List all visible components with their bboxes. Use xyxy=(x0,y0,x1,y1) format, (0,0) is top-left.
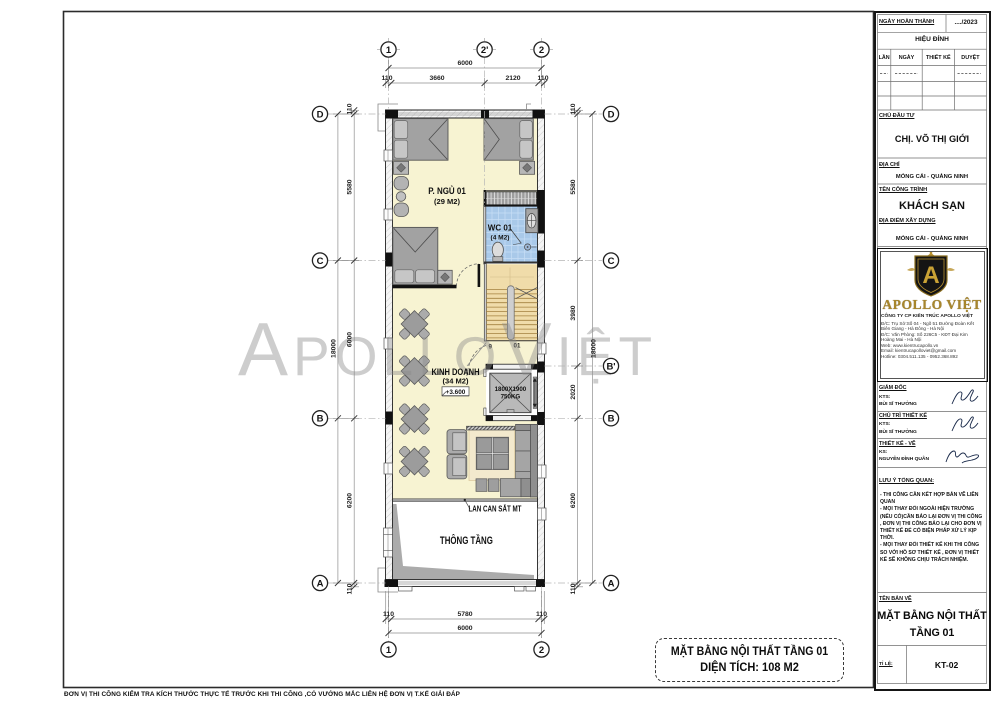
svg-text:A: A xyxy=(922,262,939,289)
